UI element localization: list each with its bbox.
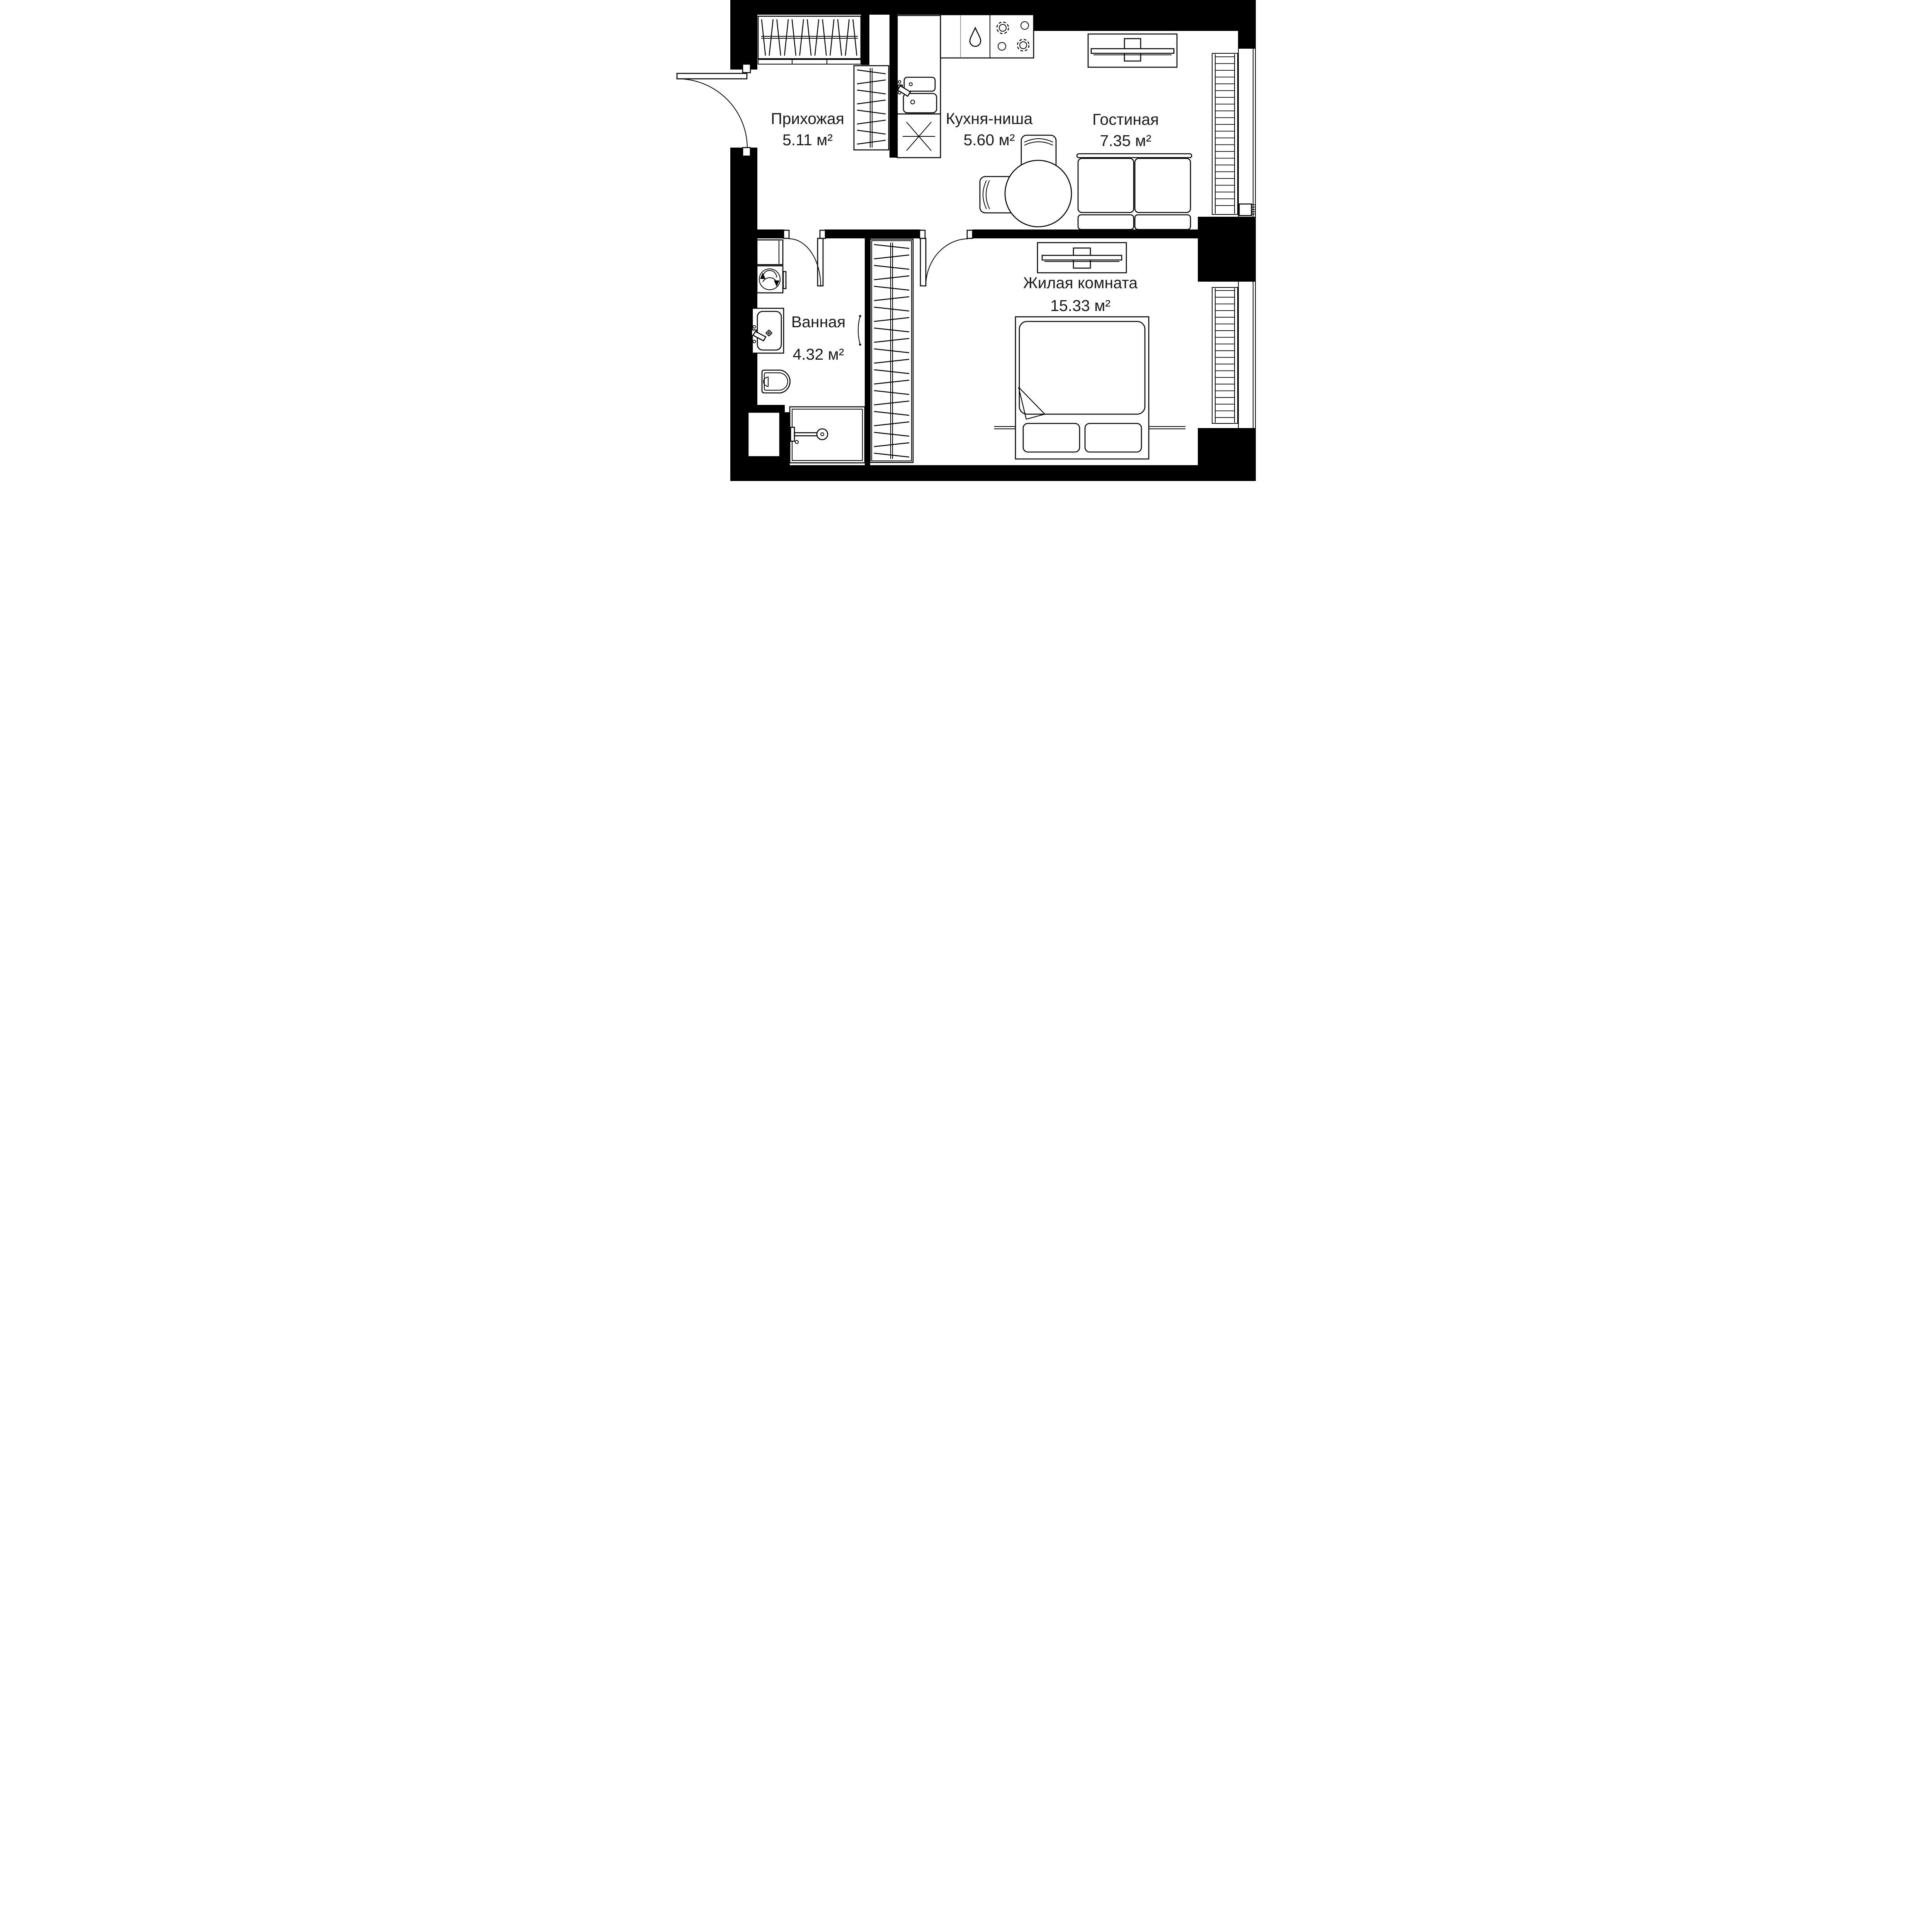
washing-machine: [757, 266, 786, 293]
floor-plan: Прихожая 5.11 м² Кухня-ниша 5.60 м² Гост…: [676, 0, 1256, 481]
radiator-window-bottom: [1212, 287, 1238, 423]
sofa-cushion-right: [1135, 158, 1190, 212]
window-top: [1238, 49, 1255, 217]
radiator-bottom-fins: [1215, 291, 1235, 418]
wall-niche-right: [780, 412, 790, 465]
bathroom-door-jamb-left: [784, 230, 789, 238]
bathroom-sink: [752, 308, 784, 353]
label-hallway-area: 5.11 м²: [782, 131, 833, 149]
wall-corridor-west: [730, 229, 784, 238]
bedroom-door-jamb-left: [920, 230, 925, 238]
shower-head-icon: [817, 429, 828, 440]
label-bedroom-name: Жилая комната: [1023, 274, 1138, 292]
coat-closet: [758, 16, 861, 59]
tall-closet: [854, 66, 889, 150]
bed-duvet: [1019, 321, 1145, 414]
window-bottom: [1238, 282, 1255, 428]
wall-top: [730, 0, 1051, 15]
wall-closet-divider: [861, 15, 869, 65]
pillow-left: [1023, 423, 1080, 452]
shoe-shelf: [758, 59, 861, 64]
label-living-name: Гостиная: [1092, 110, 1159, 128]
wall-bottom: [748, 465, 1217, 481]
wall-corridor-east: [973, 229, 1198, 238]
bathroom-door-swing-arc: [789, 239, 821, 286]
sofa: [1077, 154, 1192, 229]
label-bedroom-area: 15.33 м²: [1050, 297, 1111, 314]
entrance-door: [677, 64, 750, 156]
tv-console-living: [1088, 34, 1177, 67]
entrance-door-jamb-top: [743, 64, 750, 73]
sofa-back-right: [1135, 215, 1190, 229]
bedroom-door-leaf: [920, 238, 926, 286]
tv-screen-bedroom-icon: [1042, 255, 1122, 260]
wardrobe: [870, 239, 913, 462]
fridge-space: [897, 114, 940, 158]
entrance-door-leaf: [677, 73, 747, 79]
wall-pier-top-right: [1238, 0, 1256, 49]
window-junction-notch: [1239, 204, 1252, 216]
shower: [790, 407, 865, 463]
wall-kitchen-divider: [889, 15, 897, 158]
wall-top-thick: [1034, 0, 1238, 31]
wall-wardrobe-west: [865, 238, 870, 465]
toilet: [762, 370, 790, 393]
wall-pier-mid-right: [1198, 217, 1256, 282]
tv-console-bedroom: [1037, 243, 1126, 273]
tv-screen-icon: [1091, 49, 1174, 53]
bathroom-door-jamb-right: [820, 230, 825, 238]
bedroom-door-jamb-right: [967, 230, 973, 238]
kitchen-counter-column: [897, 15, 940, 158]
entrance-door-swing-arc: [678, 79, 747, 148]
label-kitchen-area: 5.60 м²: [963, 131, 1015, 149]
label-hallway-name: Прихожая: [771, 110, 844, 127]
shaft-niche: [748, 412, 780, 457]
wall-left-lower: [730, 412, 748, 481]
bathroom-door: [784, 230, 825, 286]
sofa-back-left: [1078, 215, 1134, 229]
label-living-area: 7.35 м²: [1100, 132, 1151, 150]
wall-corridor-mid: [825, 229, 920, 238]
wardrobe-handle-icon: [858, 315, 861, 346]
radiator-top-fins: [1215, 57, 1235, 206]
sofa-cushion-left: [1078, 158, 1134, 212]
floor-plan-canvas: Прихожая 5.11 м² Кухня-ниша 5.60 м² Гост…: [676, 0, 1256, 481]
label-kitchen-name: Кухня-ниша: [946, 110, 1033, 127]
bedroom-door: [920, 230, 973, 286]
pillow-right: [1085, 423, 1141, 452]
label-bathroom-name: Ванная: [791, 313, 845, 331]
kitchen-counter-top: [940, 15, 1034, 58]
label-bathroom-area: 4.32 м²: [793, 345, 844, 363]
dining-table: [1005, 160, 1071, 227]
bath-cabinet: [757, 240, 783, 265]
bed: [1015, 317, 1149, 459]
wall-bath-shower: [748, 405, 785, 412]
radiator-window-top: [1212, 53, 1238, 214]
entrance-door-jamb-bottom: [743, 148, 750, 156]
wall-left-mid: [730, 148, 757, 412]
bedroom-door-swing-arc: [926, 239, 968, 286]
